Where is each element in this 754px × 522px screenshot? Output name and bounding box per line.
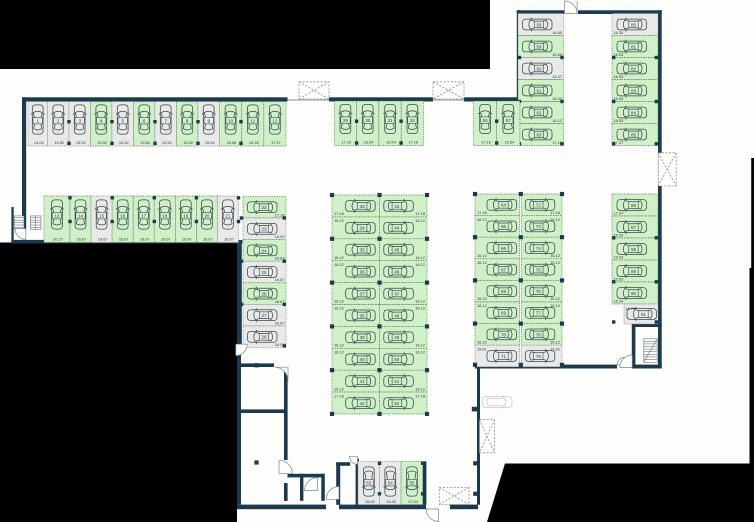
svg-text:17.37: 17.37 (271, 140, 281, 145)
svg-text:63: 63 (536, 132, 542, 137)
svg-text:17.16: 17.16 (477, 210, 487, 215)
svg-text:21: 21 (225, 214, 231, 219)
svg-text:16.12: 16.12 (415, 299, 425, 304)
svg-text:16.67: 16.67 (203, 237, 213, 242)
svg-text:32: 32 (410, 118, 416, 123)
svg-text:65: 65 (501, 224, 507, 229)
svg-text:86: 86 (631, 203, 637, 208)
svg-text:18: 18 (162, 214, 168, 219)
svg-text:16.12: 16.12 (550, 260, 560, 265)
svg-text:88: 88 (631, 247, 637, 252)
svg-text:37: 37 (360, 291, 366, 296)
svg-text:73: 73 (536, 224, 542, 229)
svg-text:16.27: 16.27 (552, 74, 562, 79)
svg-text:28: 28 (261, 335, 267, 340)
svg-text:61: 61 (536, 88, 542, 93)
svg-text:12: 12 (272, 119, 278, 124)
svg-text:15.81: 15.81 (550, 346, 560, 351)
svg-text:17.18: 17.18 (334, 211, 344, 216)
svg-text:80: 80 (631, 22, 637, 27)
svg-text:17.16: 17.16 (341, 140, 351, 145)
svg-text:16.12: 16.12 (334, 343, 344, 348)
svg-text:16: 16 (120, 214, 126, 219)
svg-text:16.67: 16.67 (98, 237, 108, 242)
svg-text:64: 64 (501, 203, 507, 208)
svg-text:16.67: 16.67 (140, 237, 150, 242)
svg-text:24: 24 (261, 248, 267, 253)
svg-text:16.67: 16.67 (182, 237, 192, 242)
svg-text:16.00: 16.00 (365, 499, 376, 504)
svg-text:42: 42 (360, 401, 366, 406)
svg-text:26: 26 (261, 292, 267, 297)
svg-text:46: 46 (394, 270, 400, 275)
svg-text:13: 13 (54, 214, 60, 219)
svg-text:23: 23 (261, 227, 267, 232)
svg-text:5: 5 (122, 119, 125, 124)
svg-text:16.12: 16.12 (415, 255, 425, 260)
svg-text:16.67: 16.67 (275, 320, 285, 325)
svg-text:16.65: 16.65 (552, 30, 562, 35)
svg-text:74: 74 (536, 246, 542, 251)
svg-text:43: 43 (394, 204, 400, 209)
svg-text:27: 27 (261, 313, 267, 318)
svg-text:40: 40 (360, 357, 366, 362)
svg-text:16.35: 16.35 (614, 30, 624, 35)
svg-text:82: 82 (631, 66, 637, 71)
svg-text:16.12: 16.12 (415, 306, 425, 311)
svg-text:47: 47 (394, 291, 400, 296)
svg-text:45: 45 (394, 248, 400, 253)
svg-text:20: 20 (204, 214, 210, 219)
svg-text:14: 14 (78, 214, 84, 219)
svg-text:17.16: 17.16 (550, 210, 560, 215)
svg-text:16.53: 16.53 (614, 74, 624, 79)
svg-text:16.12: 16.12 (477, 339, 487, 344)
svg-text:36: 36 (360, 270, 366, 275)
svg-text:76: 76 (536, 289, 542, 294)
svg-text:66: 66 (501, 246, 507, 251)
svg-text:16.12: 16.12 (550, 303, 560, 308)
svg-text:91: 91 (641, 312, 647, 317)
svg-text:16.86: 16.86 (227, 140, 237, 145)
svg-text:15.52: 15.52 (162, 140, 172, 145)
svg-text:87: 87 (631, 225, 637, 230)
svg-text:16.54: 16.54 (504, 140, 515, 145)
svg-text:16.12: 16.12 (334, 350, 344, 355)
svg-text:31: 31 (388, 118, 394, 123)
svg-text:39: 39 (360, 335, 366, 340)
svg-text:15.52: 15.52 (54, 140, 64, 145)
svg-text:2: 2 (57, 119, 60, 124)
svg-text:41: 41 (360, 379, 366, 384)
svg-text:19: 19 (183, 214, 189, 219)
svg-text:16.53: 16.53 (614, 118, 624, 123)
svg-text:77: 77 (536, 311, 542, 316)
svg-text:16.67: 16.67 (119, 237, 129, 242)
svg-text:34: 34 (360, 226, 366, 231)
svg-text:17.37: 17.37 (614, 210, 624, 215)
svg-text:33: 33 (360, 204, 366, 209)
svg-text:49: 49 (394, 335, 400, 340)
svg-text:57: 57 (506, 118, 512, 123)
svg-text:16.12: 16.12 (550, 296, 560, 301)
svg-text:10: 10 (228, 119, 234, 124)
svg-text:48: 48 (394, 313, 400, 318)
svg-text:51: 51 (394, 379, 400, 384)
svg-text:16.12: 16.12 (415, 386, 425, 391)
svg-text:17.18: 17.18 (415, 211, 425, 216)
svg-text:85: 85 (631, 132, 637, 137)
svg-text:15.52: 15.52 (183, 140, 193, 145)
svg-text:83: 83 (631, 88, 637, 93)
svg-text:6: 6 (143, 119, 146, 124)
svg-text:16.67: 16.67 (77, 237, 87, 242)
svg-text:9: 9 (208, 119, 211, 124)
svg-text:54: 54 (388, 481, 394, 486)
svg-text:1: 1 (37, 119, 40, 124)
svg-text:11: 11 (250, 119, 255, 124)
svg-text:16.12: 16.12 (477, 260, 487, 265)
svg-text:81: 81 (631, 44, 637, 49)
svg-text:16.12: 16.12 (477, 217, 487, 222)
svg-text:16.12: 16.12 (334, 299, 344, 304)
svg-text:59: 59 (536, 44, 542, 49)
svg-text:4: 4 (100, 119, 103, 124)
svg-text:53: 53 (366, 481, 372, 486)
svg-text:89: 89 (631, 269, 637, 274)
svg-text:16.12: 16.12 (334, 255, 344, 260)
svg-text:16.12: 16.12 (550, 253, 560, 258)
svg-text:25: 25 (261, 270, 267, 275)
svg-text:38: 38 (360, 313, 366, 318)
svg-text:16.12: 16.12 (415, 218, 425, 223)
svg-text:16.12: 16.12 (415, 262, 425, 267)
svg-text:16.67: 16.67 (224, 237, 234, 242)
svg-text:17: 17 (141, 214, 147, 219)
svg-text:22: 22 (261, 205, 267, 210)
svg-text:16.12: 16.12 (334, 262, 344, 267)
svg-text:16.12: 16.12 (334, 386, 344, 391)
svg-text:44: 44 (394, 226, 400, 231)
svg-text:29: 29 (343, 118, 349, 123)
svg-text:15.52: 15.52 (76, 140, 86, 145)
svg-text:16.12: 16.12 (415, 350, 425, 355)
svg-text:55: 55 (409, 481, 415, 486)
svg-text:14.04: 14.04 (34, 140, 45, 145)
svg-text:15.00: 15.00 (275, 234, 286, 239)
svg-text:69: 69 (501, 311, 507, 316)
svg-text:90: 90 (631, 291, 637, 296)
svg-text:72: 72 (536, 203, 542, 208)
svg-text:75: 75 (536, 268, 542, 273)
svg-text:15.52: 15.52 (119, 140, 129, 145)
svg-text:68: 68 (501, 289, 507, 294)
svg-text:78: 78 (536, 332, 542, 337)
svg-text:62: 62 (536, 110, 542, 115)
svg-text:17.00: 17.00 (408, 499, 419, 504)
svg-text:16.12: 16.12 (415, 343, 425, 348)
svg-text:35: 35 (360, 248, 366, 253)
svg-text:70: 70 (501, 332, 507, 337)
svg-text:16.12: 16.12 (477, 303, 487, 308)
svg-text:16.53: 16.53 (614, 254, 624, 259)
svg-text:71: 71 (501, 354, 507, 359)
svg-text:15.52: 15.52 (140, 140, 150, 145)
svg-text:16.00: 16.00 (386, 499, 397, 504)
svg-text:15.52: 15.52 (97, 140, 107, 145)
svg-text:16.12: 16.12 (550, 217, 560, 222)
svg-text:16.12: 16.12 (334, 218, 344, 223)
svg-text:17.16: 17.16 (481, 140, 491, 145)
svg-text:16.12: 16.12 (477, 253, 487, 258)
svg-text:16.12: 16.12 (552, 118, 562, 123)
svg-text:7: 7 (165, 119, 168, 124)
svg-text:16.67: 16.67 (161, 237, 171, 242)
svg-text:16.67: 16.67 (275, 277, 285, 282)
svg-text:50: 50 (394, 357, 400, 362)
svg-text:16.33: 16.33 (249, 140, 259, 145)
svg-text:16.12: 16.12 (334, 306, 344, 311)
svg-text:67: 67 (501, 268, 507, 273)
svg-text:16.54: 16.54 (386, 140, 397, 145)
svg-text:52: 52 (394, 401, 400, 406)
svg-text:17.18: 17.18 (334, 393, 344, 398)
svg-text:8: 8 (186, 119, 189, 124)
svg-text:3: 3 (79, 119, 82, 124)
svg-text:60: 60 (536, 66, 542, 71)
svg-text:84: 84 (631, 110, 637, 115)
svg-text:16.76: 16.76 (626, 306, 636, 311)
svg-text:30: 30 (365, 118, 371, 123)
svg-text:15.52: 15.52 (205, 140, 215, 145)
svg-text:17.18: 17.18 (415, 393, 425, 398)
svg-text:16.20: 16.20 (614, 298, 625, 303)
svg-text:15.81: 15.81 (477, 346, 487, 351)
svg-text:16.12: 16.12 (477, 296, 487, 301)
svg-text:17.16: 17.16 (408, 140, 418, 145)
svg-text:58: 58 (536, 22, 542, 27)
svg-text:16.54: 16.54 (364, 140, 375, 145)
svg-text:56: 56 (483, 118, 489, 123)
svg-text:16.12: 16.12 (550, 339, 560, 344)
svg-text:79: 79 (536, 354, 542, 359)
svg-text:15: 15 (99, 214, 105, 219)
svg-text:20.27: 20.27 (53, 237, 63, 242)
